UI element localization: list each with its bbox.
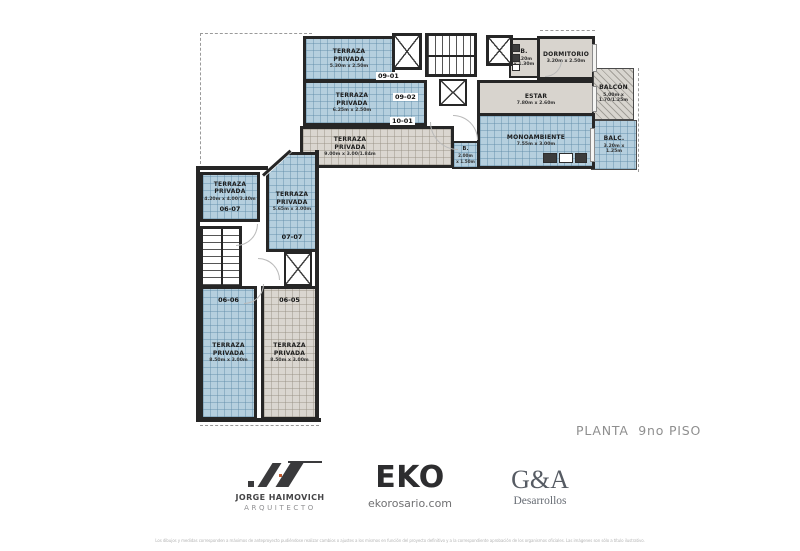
- room-label: TERRAZA PRIVADA: [212, 342, 244, 357]
- room-dimensions: 5.00m x 1.70/1.25m: [599, 93, 628, 104]
- room-balc: BALC. 3.20m x 1.25m: [591, 120, 637, 170]
- unit-label: 06-05: [279, 296, 300, 304]
- room-dimensions: 2.00m x 1.50m: [456, 153, 475, 164]
- room-terraza-06-07: TERRAZA PRIVADA 4.20m x 4.00/3.40m 06-07: [200, 172, 260, 222]
- room-label: ESTAR: [525, 93, 547, 101]
- unit-label: 07-07: [282, 233, 303, 241]
- room-label: DORMITORIO: [543, 51, 589, 59]
- room-dimensions: 7.55m x 3.00m: [517, 142, 555, 148]
- room-label: TERRAZA PRIVADA: [334, 136, 366, 151]
- ga-block: G&A Desarrollos: [494, 466, 586, 507]
- wall: [196, 418, 321, 422]
- unit-label: 06-07: [220, 205, 241, 213]
- room-dimensions: 8.50m x 3.00m: [270, 358, 308, 364]
- eko-logo: EKO: [360, 462, 460, 494]
- room-dimensions: 8.50m x 3.00m: [209, 358, 247, 364]
- projection-dashed-bottom: [200, 425, 319, 426]
- vent-shaft-icon: [486, 35, 513, 66]
- eko-block: EKO ekorosario.com: [360, 462, 460, 510]
- door-arc: [258, 258, 280, 280]
- logo-accent-dot: [279, 474, 282, 477]
- jorge-haimovich-logo-icon: [238, 458, 322, 490]
- legal-disclaimer: Los dibujos y medidas corresponden a máx…: [0, 538, 800, 543]
- room-dimensions: 4.20m x 4.00/3.40m: [204, 197, 255, 203]
- kitchenette-fixtures-icon: [543, 153, 587, 163]
- architect-block: JORGE HAIMOVICH ARQUITECTO: [222, 458, 338, 512]
- ga-subtitle: Desarrollos: [494, 495, 586, 507]
- architect-name: JORGE HAIMOVICH: [222, 493, 338, 502]
- unit-label: 09-01: [376, 72, 401, 80]
- room-dimensions: 5.30m x 2.50m: [330, 64, 368, 70]
- architect-role: ARQUITECTO: [222, 504, 338, 512]
- room-dimensions: 6.25m x 2.50m: [333, 108, 371, 114]
- window-icon: [592, 44, 597, 72]
- room-label: TERRAZA PRIVADA: [336, 92, 368, 107]
- unit-label: 09-02: [393, 93, 418, 101]
- room-dimensions: 9.00m x 3.00/1.84m: [324, 152, 375, 158]
- plan-caption: PLANTA 9no PISO: [576, 423, 701, 438]
- room-label: MONOAMBIENTE: [507, 134, 565, 142]
- eko-website: ekorosario.com: [360, 497, 460, 510]
- kitchen-fixtures-icon: [512, 44, 520, 71]
- room-terraza-10-01: TERRAZA PRIVADA 9.00m x 3.00/1.84m: [300, 126, 454, 168]
- room-terraza-06-06: 06-06 TERRAZA PRIVADA 8.50m x 3.00m: [200, 286, 257, 420]
- room-label: TERRAZA PRIVADA: [333, 48, 365, 63]
- door-arc: [236, 224, 258, 246]
- projection-dashed-area: [200, 33, 312, 164]
- wall: [196, 166, 200, 422]
- window-icon: [592, 86, 597, 112]
- room-balcon: BALCÓN 5.00m x 1.70/1.25m: [593, 68, 634, 120]
- room-terraza-06-05: 06-05 TERRAZA PRIVADA 8.50m x 3.00m: [261, 286, 318, 420]
- unit-label: 10-01: [390, 117, 415, 125]
- stairs-icon: [425, 33, 477, 77]
- logo-dot: [248, 481, 254, 487]
- window-icon: [590, 128, 595, 162]
- room-label: B.: [462, 146, 468, 152]
- room-monoambiente: MONOAMBIENTE 7.55m x 3.00m: [477, 113, 595, 169]
- room-label: TERRAZA PRIVADA: [276, 191, 308, 206]
- unit-label: 06-06: [218, 296, 239, 304]
- room-label: B.: [520, 48, 527, 56]
- room-label: TERRAZA PRIVADA: [273, 342, 305, 357]
- room-dimensions: 7.80m x 2.60m: [517, 101, 555, 107]
- elevator-icon: [284, 252, 312, 286]
- projection-dashed-top-right: [540, 30, 595, 31]
- wall: [315, 150, 319, 422]
- room-label: TERRAZA PRIVADA: [214, 181, 246, 196]
- ga-logo: G&A: [494, 466, 586, 494]
- room-dimensions: 3.20m x 1.25m: [604, 144, 625, 155]
- room-label: BALC.: [604, 135, 625, 143]
- room-label: BALCÓN: [599, 84, 628, 92]
- room-dimensions: 5.65m x 3.00m: [273, 207, 311, 213]
- elevator-icon: [439, 79, 467, 106]
- projection-dashed-right: [638, 68, 639, 172]
- room-banio-dormitorio: B. 2.20m x 1.30m: [509, 38, 539, 78]
- page: { "plan": { "caption": "PLANTA 9no PISO"…: [0, 0, 800, 551]
- vent-shaft-icon: [392, 33, 422, 70]
- wall: [196, 166, 268, 170]
